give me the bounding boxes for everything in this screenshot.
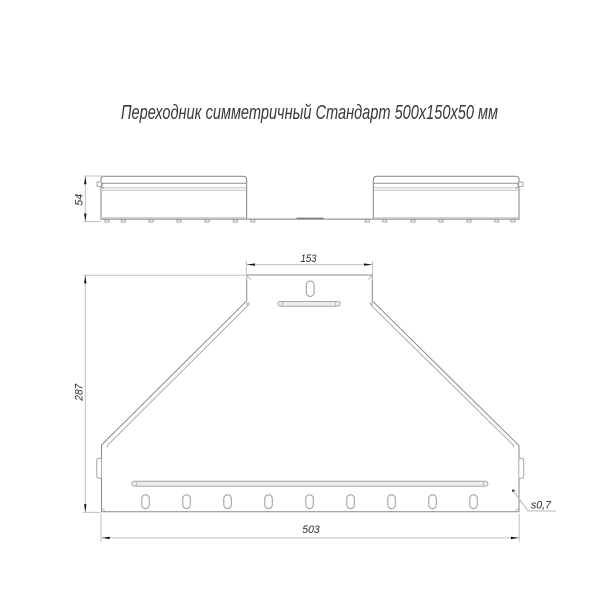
svg-text:s0,7: s0,7 <box>531 500 552 512</box>
svg-text:503: 503 <box>302 524 320 536</box>
svg-text:54: 54 <box>73 194 85 206</box>
svg-text:287: 287 <box>74 383 86 402</box>
svg-text:Переходник симметричный Станда: Переходник симметричный Стандарт 500х150… <box>121 102 498 124</box>
svg-text:153: 153 <box>301 253 318 265</box>
